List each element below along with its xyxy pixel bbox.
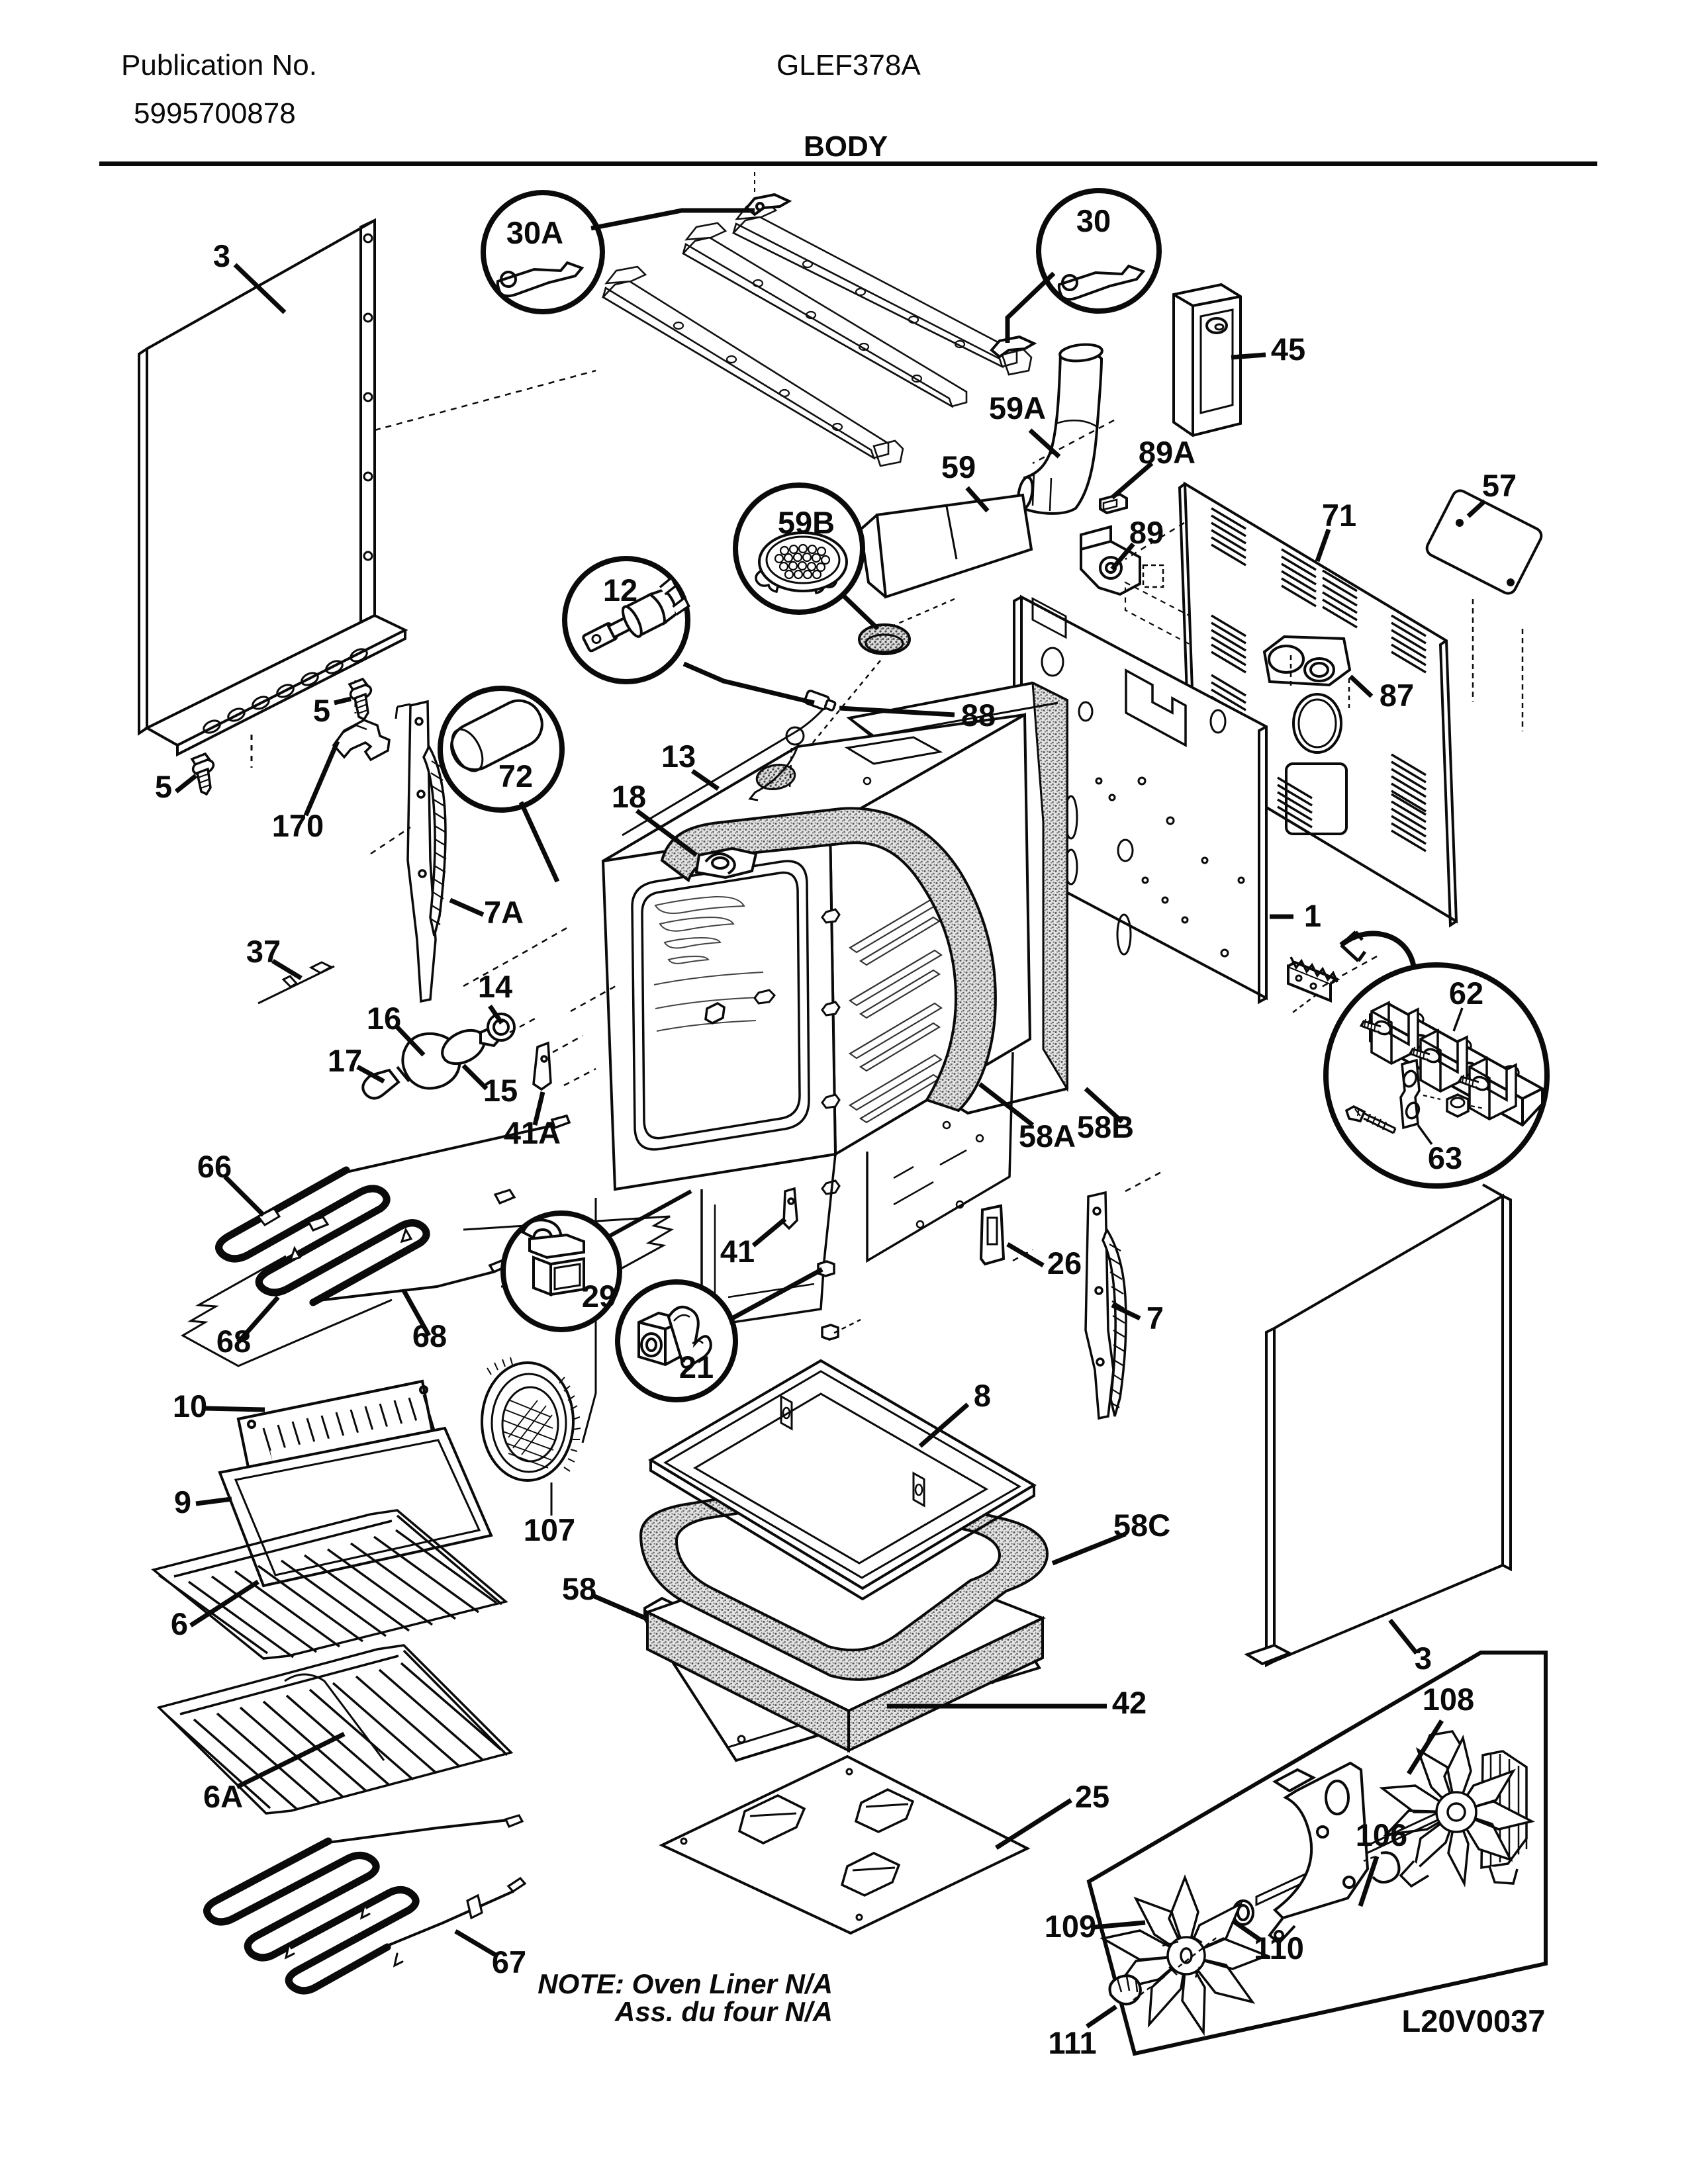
svg-text:30: 30 (1076, 203, 1111, 238)
svg-text:1: 1 (1304, 898, 1321, 933)
svg-text:13: 13 (661, 739, 696, 774)
svg-text:37: 37 (246, 934, 281, 969)
svg-text:107: 107 (524, 1512, 575, 1547)
svg-text:41A: 41A (504, 1115, 561, 1150)
svg-text:42: 42 (1112, 1685, 1147, 1720)
svg-text:29: 29 (582, 1279, 616, 1314)
svg-text:45: 45 (1271, 332, 1305, 367)
svg-text:26: 26 (1047, 1246, 1082, 1281)
svg-text:63: 63 (1428, 1140, 1462, 1175)
svg-text:88: 88 (961, 698, 996, 733)
svg-text:106: 106 (1356, 1817, 1407, 1852)
svg-text:108: 108 (1423, 1682, 1474, 1717)
svg-text:7: 7 (1147, 1300, 1164, 1336)
svg-text:6A: 6A (203, 1779, 243, 1814)
svg-text:68: 68 (412, 1318, 447, 1353)
svg-text:5: 5 (313, 693, 330, 728)
svg-text:58C: 58C (1113, 1508, 1170, 1543)
svg-text:41: 41 (720, 1234, 755, 1269)
svg-text:66: 66 (197, 1149, 232, 1184)
svg-text:3: 3 (1415, 1641, 1432, 1676)
svg-text:8: 8 (974, 1378, 991, 1413)
svg-text:7A: 7A (484, 895, 524, 930)
svg-text:14: 14 (478, 969, 512, 1004)
svg-text:12: 12 (603, 572, 637, 608)
svg-text:5995700878: 5995700878 (134, 97, 296, 130)
svg-text:10: 10 (173, 1388, 207, 1424)
svg-text:87: 87 (1380, 678, 1414, 713)
svg-text:57: 57 (1482, 468, 1517, 503)
svg-text:58B: 58B (1077, 1109, 1134, 1144)
svg-text:L20V0037: L20V0037 (1402, 2003, 1546, 2038)
svg-text:Ass. du four N/A: Ass. du four N/A (614, 1996, 833, 2027)
svg-text:59B: 59B (778, 505, 835, 540)
svg-text:17: 17 (328, 1043, 362, 1078)
svg-text:15: 15 (483, 1073, 518, 1108)
svg-text:89: 89 (1129, 515, 1164, 550)
svg-text:67: 67 (492, 1944, 526, 1979)
svg-text:68: 68 (216, 1324, 251, 1359)
svg-text:62: 62 (1449, 976, 1483, 1011)
svg-text:71: 71 (1322, 498, 1356, 533)
svg-text:110: 110 (1254, 1931, 1304, 1966)
svg-text:BODY: BODY (804, 130, 888, 163)
svg-text:9: 9 (174, 1484, 191, 1520)
svg-text:25: 25 (1075, 1779, 1109, 1814)
svg-text:18: 18 (612, 779, 646, 814)
svg-text:58A: 58A (1019, 1118, 1076, 1154)
svg-text:16: 16 (367, 1001, 401, 1036)
svg-text:5: 5 (155, 769, 172, 804)
svg-text:72: 72 (498, 758, 533, 794)
svg-text:89A: 89A (1139, 435, 1196, 470)
svg-text:111: 111 (1048, 2025, 1096, 2060)
svg-text:170: 170 (272, 808, 324, 843)
svg-text:Publication No.: Publication No. (121, 49, 317, 81)
svg-text:21: 21 (679, 1349, 714, 1385)
svg-text:109: 109 (1045, 1909, 1096, 1944)
svg-text:58: 58 (562, 1571, 596, 1606)
svg-text:30A: 30A (506, 215, 563, 250)
svg-text:GLEF378A: GLEF378A (776, 49, 921, 81)
svg-text:3: 3 (213, 238, 230, 273)
svg-text:6: 6 (171, 1606, 188, 1641)
svg-text:NOTE: Oven Liner N/A: NOTE: Oven Liner N/A (538, 1968, 833, 1999)
svg-text:59A: 59A (989, 390, 1046, 426)
svg-text:59: 59 (941, 449, 976, 484)
